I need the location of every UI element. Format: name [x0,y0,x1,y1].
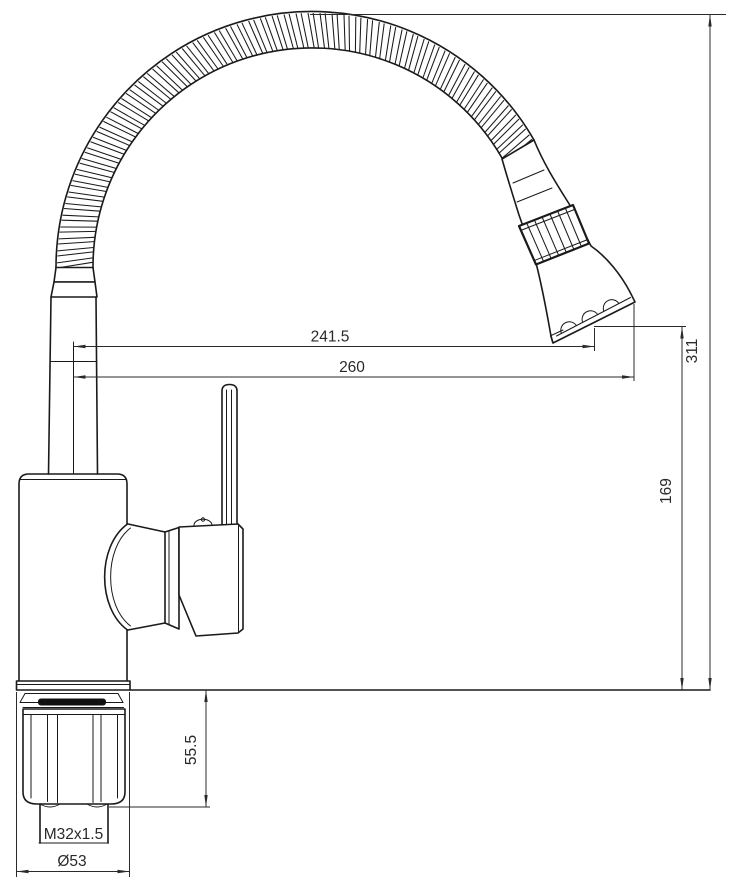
faucet-drawing-svg: 241.5 260 311 169 55.5 M32x1.5 [0,0,731,887]
spray-head [502,140,635,343]
dim-169-label: 169 [658,478,675,504]
cartridge-cone [105,524,165,630]
dim-311-label: 311 [684,339,701,364]
rubber-gasket [38,699,106,706]
technical-drawing-canvas: 241.5 260 311 169 55.5 M32x1.5 [0,0,731,887]
dim-nozzle-height-169: 169 [594,327,686,691]
hose-corrugation-ticks [57,13,532,268]
flexible-hose [51,11,534,297]
dim-thread-label: M32x1.5 [44,826,103,843]
flange-outline [17,681,131,690]
base-flange [17,681,131,690]
handle-dome [194,519,212,525]
hose-inner-arc [93,48,502,268]
handle-lever-rod [222,385,237,527]
handle-body [179,518,243,636]
dim-53-label: Ø53 [57,853,86,870]
cone-bottom-edge [128,623,165,630]
cone-top-edge [128,524,165,532]
collar-outline [165,528,179,630]
cone-mouth-curve [105,524,128,630]
spout-left-edge [49,297,52,474]
hose-connector-lower [51,282,97,297]
lever-rod-outline [222,385,237,527]
cone-mouth-inner-curve [111,528,131,626]
hose-connector-upper [54,268,95,283]
nut-outline [23,709,125,804]
handle-body-outline [179,524,243,636]
handle-collar [165,528,179,630]
dim-260-label: 260 [339,359,365,376]
dim-thread-spec: M32x1.5 [44,826,103,843]
dim-55-label: 55.5 [183,735,200,765]
dim-241-label: 241.5 [311,329,350,346]
dim-spout-reach-241: 241.5 [74,328,595,351]
mounting-washer [20,694,124,708]
spout-right-edge [96,297,98,474]
mounting-nut [23,709,125,807]
spout-column [49,297,98,474]
